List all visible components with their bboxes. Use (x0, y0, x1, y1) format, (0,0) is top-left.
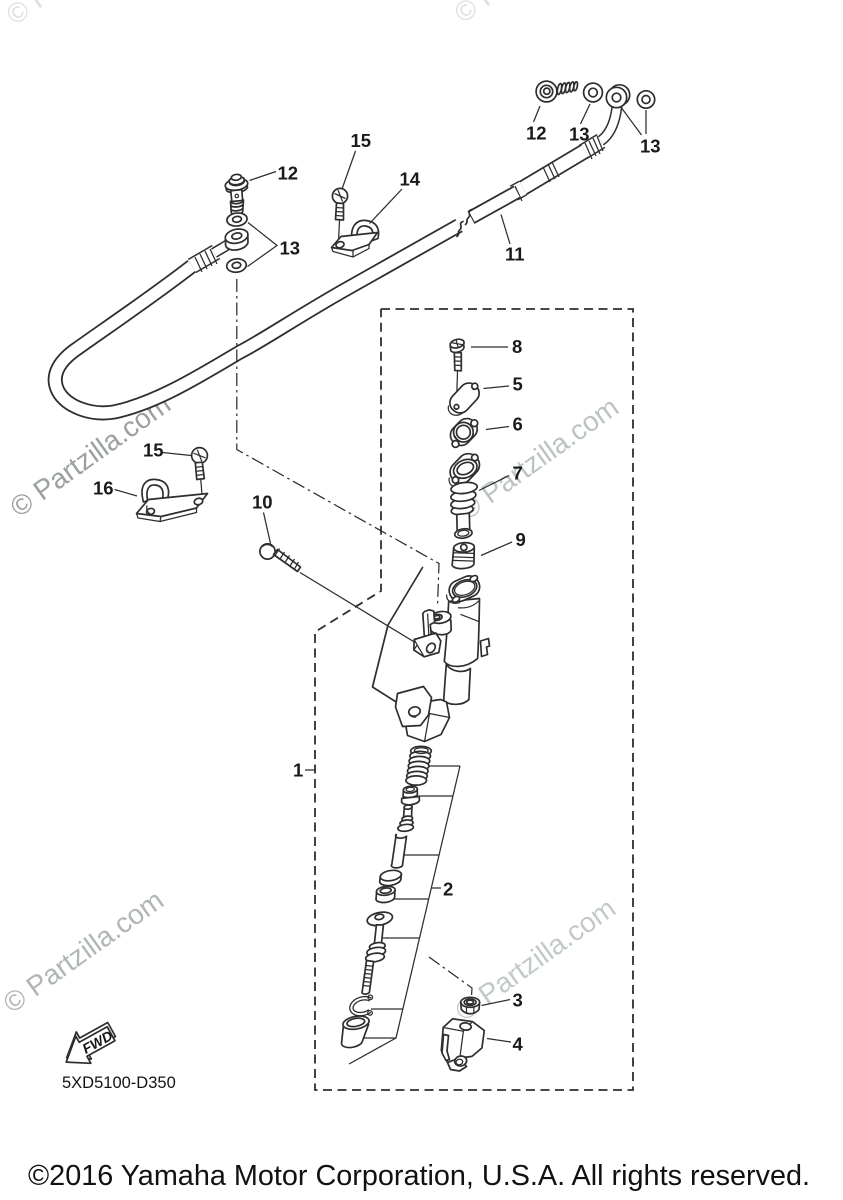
svg-text:11: 11 (505, 244, 525, 265)
svg-text:16: 16 (93, 478, 114, 499)
svg-text:9: 9 (516, 529, 526, 550)
svg-text:12: 12 (278, 163, 299, 184)
svg-text:8: 8 (512, 336, 522, 357)
svg-text:13: 13 (640, 136, 661, 157)
svg-text:2: 2 (443, 879, 453, 900)
svg-text:1: 1 (293, 760, 303, 781)
svg-text:6: 6 (513, 414, 523, 435)
svg-text:7: 7 (513, 463, 523, 484)
svg-text:5: 5 (513, 374, 523, 395)
svg-text:12: 12 (526, 123, 547, 144)
svg-text:13: 13 (280, 238, 301, 259)
svg-text:15: 15 (351, 130, 372, 151)
svg-text:10: 10 (252, 492, 273, 513)
svg-text:15: 15 (143, 440, 164, 461)
svg-text:3: 3 (513, 990, 523, 1011)
svg-text:5XD5100-D350: 5XD5100-D350 (62, 1074, 176, 1092)
svg-text:4: 4 (513, 1034, 524, 1055)
svg-text:13: 13 (569, 124, 590, 145)
svg-text:©2016 Yamaha Motor Corporation: ©2016 Yamaha Motor Corporation, U.S.A. A… (28, 1160, 810, 1192)
svg-text:14: 14 (400, 169, 421, 190)
